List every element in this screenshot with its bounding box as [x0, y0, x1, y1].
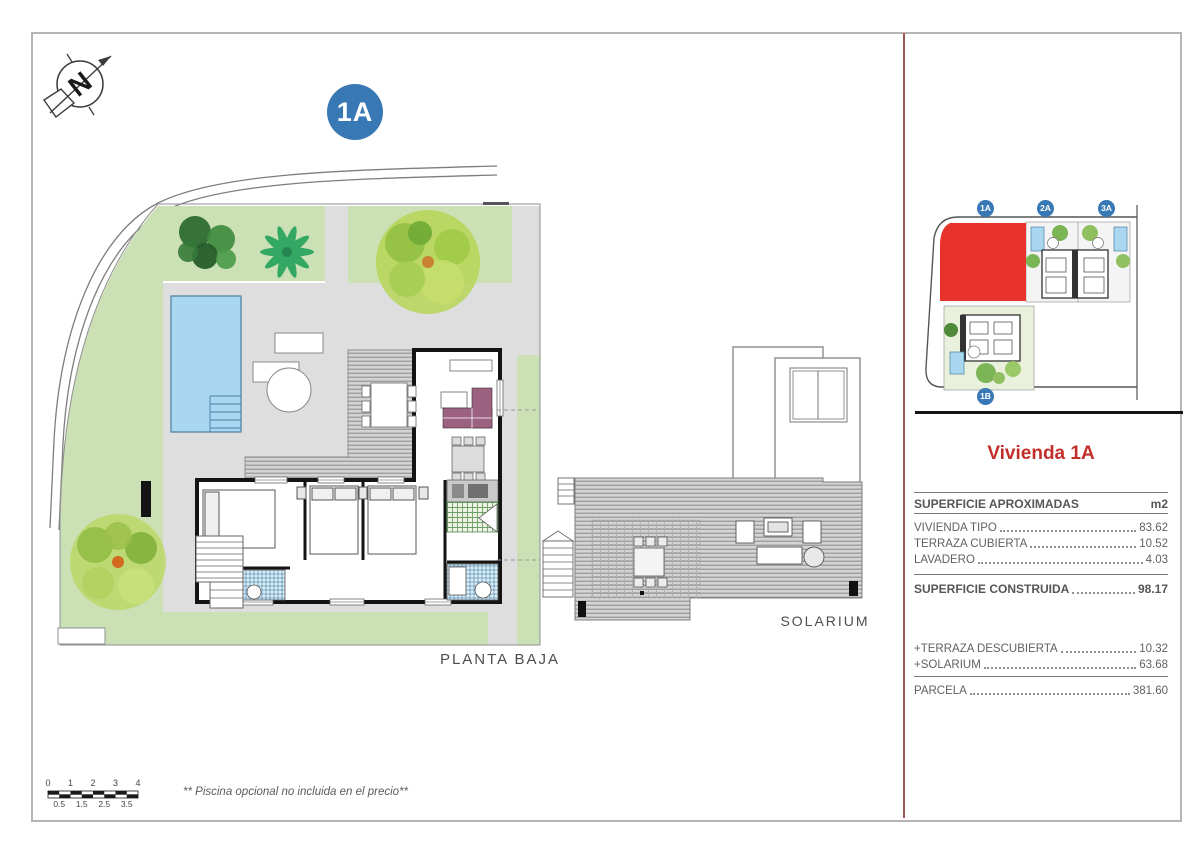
row-value: 10.32	[1139, 643, 1168, 655]
entrance-gate	[58, 628, 105, 644]
site-mini-plan	[926, 205, 1137, 400]
scale-tick: 4	[127, 778, 149, 788]
scale-tick: 3.5	[116, 799, 138, 809]
dot-leader	[1030, 546, 1136, 548]
site-badge-1a: 1A	[977, 200, 994, 217]
scale-tick: 3	[105, 778, 127, 788]
scale-tick: 1.5	[71, 799, 93, 809]
sidebar-divider	[903, 33, 905, 818]
table-header: SUPERFICIE APROXIMADAS m2	[914, 497, 1168, 511]
site-badge-3a: 3A	[1098, 200, 1115, 217]
row-label: SUPERFICIE CONSTRUIDA	[914, 582, 1069, 596]
tree-large-right	[376, 210, 480, 314]
site-badge-1b: 1B	[977, 388, 994, 405]
table-line	[914, 676, 1168, 677]
row-label: +SOLARIUM	[914, 659, 981, 671]
row-value: 4.03	[1146, 554, 1168, 566]
table-row: VIVIENDA TIPO 83.62	[914, 519, 1168, 534]
highlighted-plot-1a	[940, 223, 1026, 301]
house-1b	[944, 306, 1034, 390]
table-total-row: SUPERFICIE CONSTRUIDA 98.17	[914, 581, 1168, 596]
pool	[171, 296, 241, 432]
plan-sheet: N	[0, 0, 1200, 849]
scale-bar	[48, 791, 138, 798]
gate-pillar	[141, 481, 151, 517]
row-label: LAVADERO	[914, 554, 975, 566]
row-label: PARCELA	[914, 685, 967, 697]
wall-mark	[483, 202, 509, 205]
planta-baja-label: PLANTA BAJA	[438, 651, 562, 668]
row-label: VIVIENDA TIPO	[914, 522, 997, 534]
table-row: LAVADERO 4.03	[914, 551, 1168, 566]
surface-table: SUPERFICIE APROXIMADAS m2 VIVIENDA TIPO …	[914, 486, 1168, 701]
unit-badge-1a: 1A	[327, 84, 383, 140]
dot-leader	[1000, 530, 1136, 532]
main-plot	[50, 166, 540, 645]
plan-drawing: N	[0, 0, 1200, 849]
row-value: 98.17	[1138, 582, 1168, 596]
row-label: TERRAZA CUBIERTA	[914, 538, 1027, 550]
row-label: +TERRAZA DESCUBIERTA	[914, 643, 1058, 655]
solarium-plan	[543, 347, 862, 620]
table-line	[914, 492, 1168, 493]
dot-leader	[970, 693, 1130, 695]
scale-tick: 2.5	[93, 799, 115, 809]
scale-tick: 0.5	[48, 799, 70, 809]
dot-leader	[984, 667, 1136, 669]
table-line	[914, 513, 1168, 514]
north-arrow-icon: N	[44, 54, 111, 117]
dot-leader	[1072, 592, 1135, 594]
table-header-unit: m2	[1151, 497, 1168, 511]
row-value: 63.68	[1139, 659, 1168, 671]
scale-tick: 0	[37, 778, 59, 788]
sidebar-rule	[915, 411, 1183, 414]
row-value: 381.60	[1133, 685, 1168, 697]
table-row: TERRAZA CUBIERTA 10.52	[914, 535, 1168, 550]
solarium-label: SOLARIUM	[772, 613, 878, 629]
site-badge-2a: 2A	[1037, 200, 1054, 217]
table-row: +SOLARIUM 63.68	[914, 656, 1168, 671]
tree-large-left	[70, 514, 166, 610]
table-line	[914, 574, 1168, 575]
sidebar-title: Vivienda 1A	[914, 443, 1168, 465]
row-value: 10.52	[1139, 538, 1168, 550]
scale-tick: 2	[82, 778, 104, 788]
dot-leader	[1061, 651, 1137, 653]
scale-tick: 1	[60, 778, 82, 788]
dot-leader	[978, 562, 1143, 564]
pool-disclaimer-note: ** Piscina opcional no incluida en el pr…	[183, 786, 408, 798]
solarium-stairs	[543, 478, 574, 597]
table-parcel-row: PARCELA 381.60	[914, 682, 1168, 697]
table-row: +TERRAZA DESCUBIERTA 10.32	[914, 640, 1168, 655]
row-value: 83.62	[1139, 522, 1168, 534]
table-header-label: SUPERFICIE APROXIMADAS	[914, 497, 1079, 511]
